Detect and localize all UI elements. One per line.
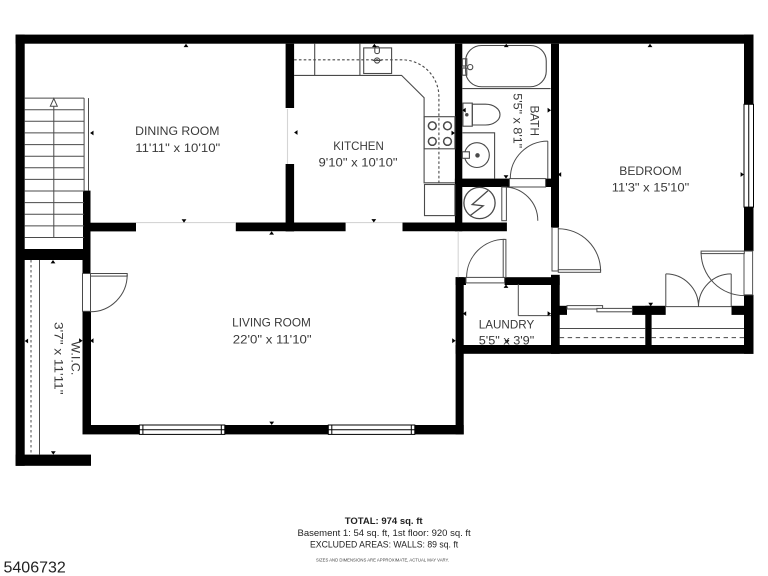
svg-text:EXCLUDED AREAS: WALLS: 89 sq.: EXCLUDED AREAS: WALLS: 89 sq. ft <box>310 539 459 550</box>
svg-text:22'0" x 11'10": 22'0" x 11'10" <box>233 332 312 346</box>
svg-text:5'5" x 8'1": 5'5" x 8'1" <box>511 93 525 148</box>
svg-text:DINING ROOM: DINING ROOM <box>135 124 219 138</box>
svg-text:11'3" x 15'10": 11'3" x 15'10" <box>612 181 690 195</box>
svg-text:W.I.C.: W.I.C. <box>68 341 82 375</box>
svg-text:5'5" x 3'9": 5'5" x 3'9" <box>479 334 535 348</box>
svg-text:LIVING ROOM: LIVING ROOM <box>232 315 311 329</box>
svg-text:3'7" x 11'11": 3'7" x 11'11" <box>51 322 65 395</box>
svg-text:KITCHEN: KITCHEN <box>333 139 384 153</box>
svg-text:11'11" x 10'10": 11'11" x 10'10" <box>135 141 220 155</box>
svg-text:5406732: 5406732 <box>4 560 66 576</box>
svg-text:Basement 1: 54 sq. ft, 1st flo: Basement 1: 54 sq. ft, 1st floor: 920 sq… <box>298 528 472 539</box>
svg-text:LAUNDRY: LAUNDRY <box>479 318 535 332</box>
svg-text:9'10" x 10'10": 9'10" x 10'10" <box>319 156 398 170</box>
svg-text:BEDROOM: BEDROOM <box>619 164 681 178</box>
svg-text:SIZES AND DIMENSIONS ARE APPRO: SIZES AND DIMENSIONS ARE APPROXIMATE, AC… <box>316 558 449 563</box>
svg-text:BATH: BATH <box>528 105 542 136</box>
svg-text:TOTAL: 974 sq. ft: TOTAL: 974 sq. ft <box>345 516 424 527</box>
